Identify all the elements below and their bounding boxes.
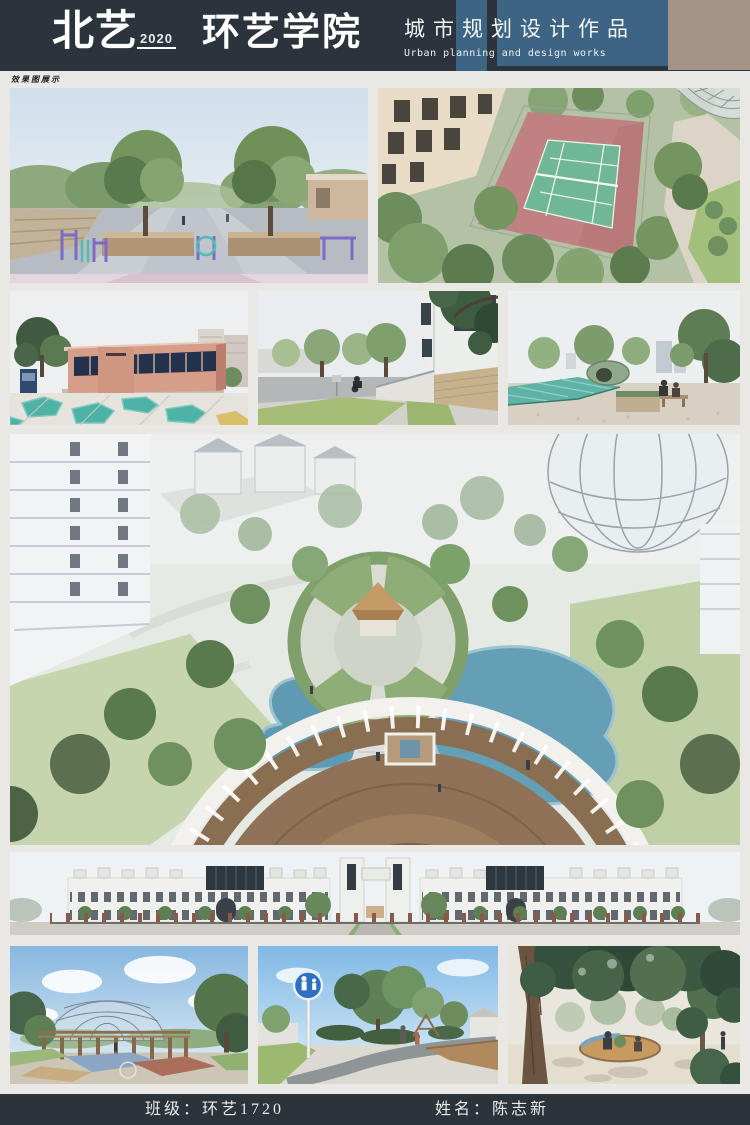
section-label: 效果图展示 [11,74,61,85]
poster-title-cn: 城市规划设计作品 [404,13,636,43]
restroom-building-scene [10,291,248,425]
render-tennis-court-aerial [378,88,740,283]
render-capsule-pavilion-park [508,291,740,425]
poster-title-block: 城市规划设计作品 Urban planning and design works [404,13,636,59]
tree-bench-scene [508,946,740,1084]
dome-pergola-scene [10,946,248,1084]
render-accessible-ramp-street [258,291,498,425]
render-dome-pergola-plaza [10,946,248,1084]
fitness-plaza-scene [10,88,368,283]
render-central-park-aerial [10,434,740,845]
ramp-street-scene [258,291,498,425]
pedestrian-path-scene [258,946,498,1084]
footer-bar: 班级：环艺1720 姓名：陈志新 [0,1094,750,1125]
render-tree-ring-bench [508,946,740,1084]
ring-bench [580,1036,660,1062]
footer-class-label: 班级：环艺1720 [145,1094,284,1125]
footer-name-label: 姓名：陈志新 [435,1094,549,1125]
logo-cn-text: 北艺 [52,10,138,52]
arc-gate [386,734,434,764]
poster-title-en: Urban planning and design works [404,48,636,59]
street-elevation-scene [10,852,740,935]
render-fitness-plaza [10,88,368,283]
geodesic-dome [50,1001,164,1041]
header-bar: 北艺 2020 环艺学院 城市规划设计作品 Urban planning and… [0,0,750,71]
capsule-park-scene [508,291,740,425]
render-pedestrian-path [258,946,498,1084]
logo-dept-text: 环艺学院 [202,14,362,52]
tennis-aerial-scene [378,88,740,283]
presentation-board: 北艺 2020 环艺学院 城市规划设计作品 Urban planning and… [0,0,750,1125]
render-public-restroom-building [10,291,248,425]
render-street-elevation [10,852,740,935]
header-taupe-band [668,0,750,70]
central-park-scene [10,434,740,845]
logo-year-text: 2020 [137,31,176,49]
school-logo: 北艺 2020 环艺学院 [52,10,362,52]
